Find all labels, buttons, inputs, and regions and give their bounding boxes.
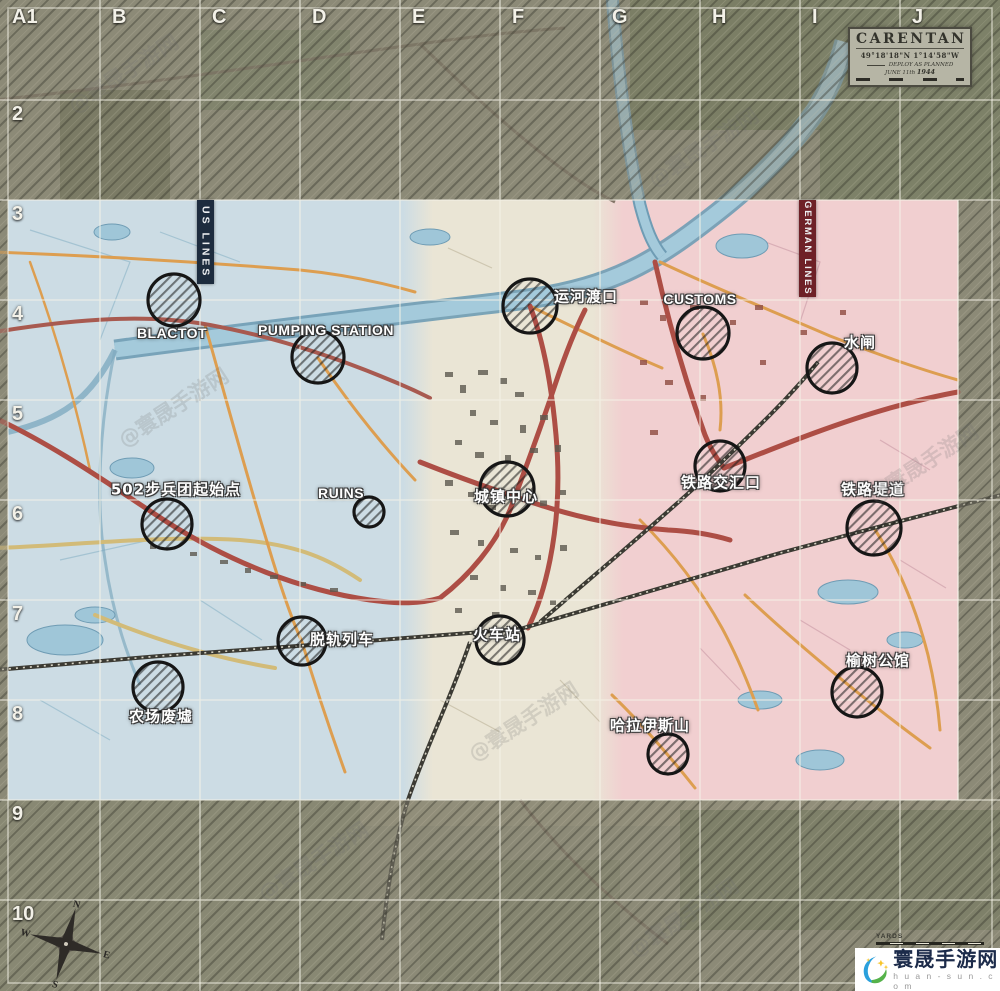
grid-row-label: 5 (12, 404, 23, 424)
compass-s: S (51, 979, 60, 990)
grid-row-label: 8 (12, 704, 23, 724)
grid-row-label: 2 (12, 104, 23, 124)
map-year: 1944 (917, 68, 935, 76)
site-name: 寰晟手游网 (893, 948, 1000, 970)
poi-label-pumping-station: PUMPING STATION (258, 323, 394, 337)
compass-n: N (72, 899, 83, 912)
us-lines-banner: US LINES (197, 200, 214, 284)
grid-row-label: 9 (12, 804, 23, 824)
grid-col-label: I (812, 7, 818, 27)
scale-bar (876, 942, 984, 945)
divider (867, 65, 885, 66)
poi-label-sluice-gate: 水闸 (844, 336, 876, 351)
grid-col-label: C (212, 7, 226, 27)
poi-label-mount-halais: 哈拉伊斯山 (610, 719, 690, 734)
grid-col-label: J (912, 7, 923, 27)
poi-label-elm-mansion: 榆树公馆 (846, 654, 910, 669)
grid-col-label: G (612, 7, 628, 27)
compass-e: E (102, 949, 112, 961)
poi-label-ruins: RUINS (318, 486, 364, 500)
poi-label-derailed-train: 脱轨列车 (310, 633, 374, 648)
grid-col-label: D (312, 7, 326, 27)
poi-label-farm-ruins: 农场废墟 (129, 710, 193, 725)
map-title-box: CARENTAN 49°18'18"N 1°14'58"W DEPLOY AS … (848, 27, 972, 87)
compass-rose: N E S W (20, 898, 112, 990)
grid-row-label: 3 (12, 204, 23, 224)
grid-col-label: B (112, 7, 126, 27)
tactical-map[interactable]: A1BCDEFGHIJ 2345678910 US LINES GERMAN L… (0, 0, 1000, 991)
site-watermark-badge: 寰晟手游网 h u a n - s u n . c o m (855, 948, 1000, 991)
poi-label-rail-causeway: 铁路堤道 (841, 483, 905, 498)
poi-label-train-station: 火车站 (473, 628, 521, 643)
poi-label-502-start: 502步兵团起始点 (111, 483, 241, 498)
poi-label-blactot: BLACTOT (137, 326, 207, 340)
poi-label-canal-crossing: 运河渡口 (554, 290, 618, 305)
grid-row-label: 7 (12, 604, 23, 624)
german-lines-banner: GERMAN LINES (799, 200, 816, 297)
map-title: CARENTAN (856, 31, 964, 49)
map-date: JUNE 11th (885, 70, 915, 76)
title-box-scalebar (856, 78, 964, 81)
compass-w: W (20, 927, 32, 940)
map-coordinates: 49°18'18"N 1°14'58"W (856, 51, 964, 60)
poi-label-town-center: 城镇中心 (474, 490, 538, 505)
grid-row-label: 4 (12, 304, 23, 324)
grid-col-label: A1 (12, 7, 38, 27)
site-url: h u a n - s u n . c o m (893, 971, 1000, 991)
grid-col-label: E (412, 7, 425, 27)
poi-label-rail-junction: 铁路交汇口 (681, 476, 761, 491)
poi-label-customs: CUSTOMS (663, 292, 736, 306)
grid-col-label: H (712, 7, 726, 27)
grid-col-label: F (512, 7, 524, 27)
site-logo-icon (858, 951, 890, 989)
grid-row-label: 6 (12, 504, 23, 524)
scale-yards-label: YARDS (876, 933, 903, 940)
